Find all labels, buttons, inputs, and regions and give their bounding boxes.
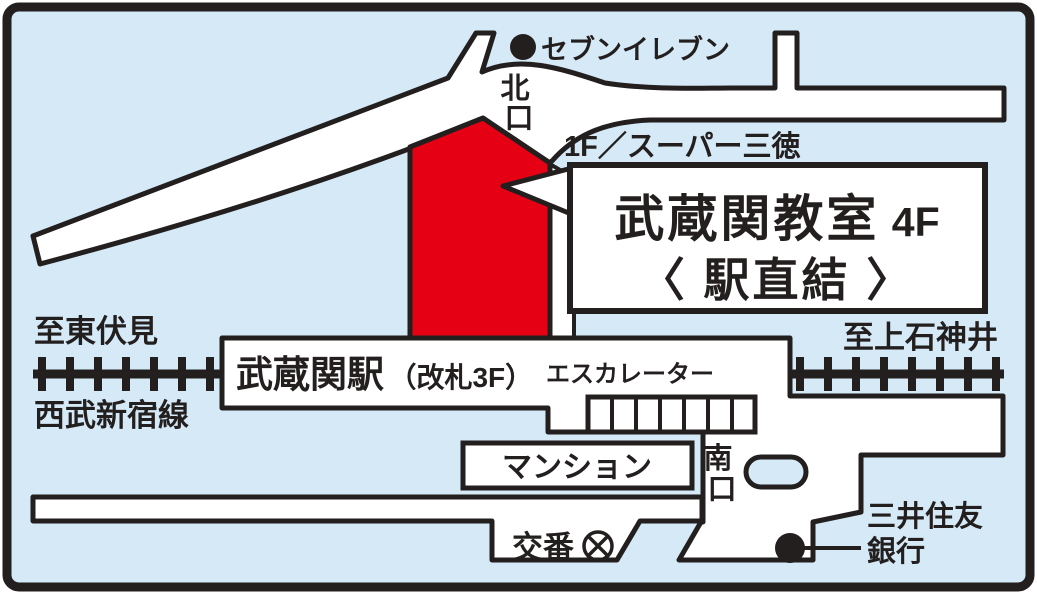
mansion-label: マンション <box>502 451 652 484</box>
north-exit-label: 北 口 <box>500 72 537 135</box>
map-canvas: マンション セブンイレブン 北 口 1F／スーパー三徳 至東伏見 西武新宿線 至… <box>0 0 1037 594</box>
seven-eleven-label: セブンイレブン <box>541 34 730 65</box>
police-box-label: 交番 <box>512 530 575 565</box>
bus-rotary <box>746 457 806 487</box>
supermarket-label: 1F／スーパー三徳 <box>564 130 801 163</box>
to-higashifushimi-label: 至東伏見 <box>34 314 158 349</box>
to-kamishakujii-label: 至上石神井 <box>843 320 998 355</box>
classroom-building <box>410 118 550 338</box>
classroom-title: 武蔵関教室 4F <box>614 191 939 247</box>
classroom-subtitle: 〈 駅直結 〉 <box>639 254 916 306</box>
bank-dot <box>775 533 805 563</box>
railway-ticks-left <box>42 357 210 391</box>
escalator-icon <box>588 397 755 432</box>
escalator-label: エスカレーター <box>546 361 714 388</box>
seven-eleven-dot <box>510 34 536 60</box>
access-map: マンション セブンイレブン 北 口 1F／スーパー三徳 至東伏見 西武新宿線 至… <box>0 0 1037 594</box>
railway-line-name-label: 西武新宿線 <box>34 398 189 433</box>
south-exit-label: 南 口 <box>703 442 740 506</box>
